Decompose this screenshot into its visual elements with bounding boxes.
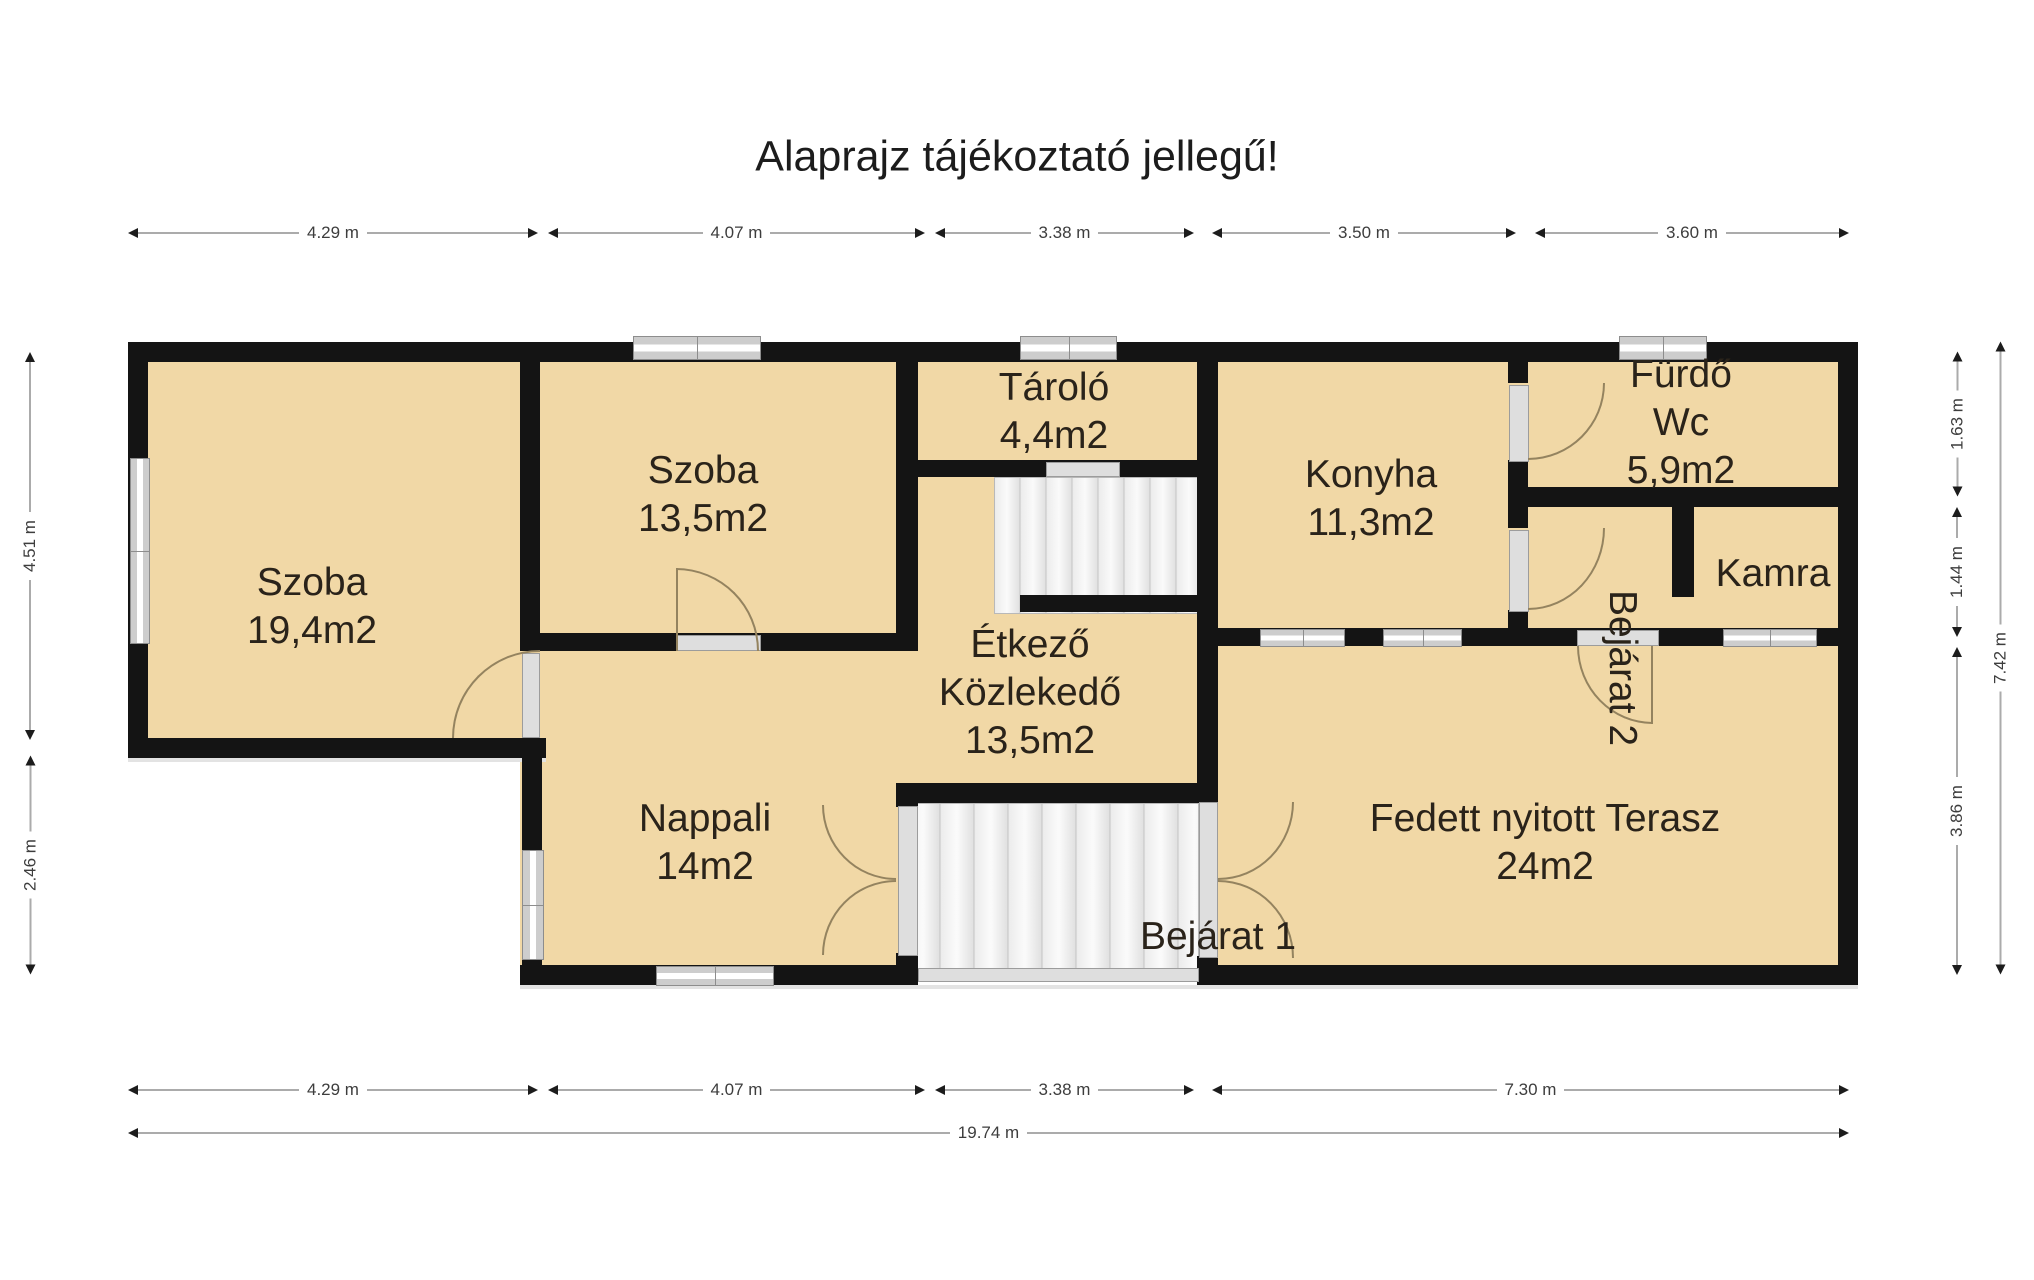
dimension-right-3: 3.86 m xyxy=(1949,647,1965,975)
floor-plan: Alaprajz tájékoztató jellegű! xyxy=(0,0,2034,1280)
doorway-furdo xyxy=(1509,385,1529,462)
dimension-left-2: 2.46 m xyxy=(23,756,39,975)
dimension-bottom-1: 4.29 m xyxy=(128,1082,538,1098)
window-hall xyxy=(1723,629,1817,647)
dimension-right-total: 7.42 m xyxy=(1993,342,2009,975)
dimension-top-3: 3.38 m xyxy=(935,225,1194,241)
room-label-szoba-13: Szoba 13,5m2 xyxy=(638,447,768,543)
doorway-hall xyxy=(1509,530,1529,612)
dimension-top-4: 3.50 m xyxy=(1212,225,1516,241)
wall-terasz-bottom xyxy=(1197,965,1858,985)
dimension-right-1: 1.63 m xyxy=(1950,352,1966,497)
wall-furdo-left xyxy=(1508,342,1528,383)
window-nappali-left xyxy=(522,850,544,960)
dimension-right-2: 1.44 m xyxy=(1949,507,1965,637)
outside-area-mask xyxy=(66,758,520,1070)
room-label-terasz: Fedett nyitott Terasz 24m2 xyxy=(1370,795,1720,891)
window-szoba19-left xyxy=(130,458,150,644)
dimension-bottom-4: 7.30 m xyxy=(1212,1082,1849,1098)
wall-tarolo-left xyxy=(896,342,918,651)
label-bejarat-2: Bejárat 2 xyxy=(1598,590,1646,746)
label-bejarat-1: Bejárat 1 xyxy=(1140,913,1296,961)
room-label-furdo: Fürdő Wc 5,9m2 xyxy=(1627,351,1735,495)
window-nappali-bottom xyxy=(656,966,774,986)
doorway-nappali-double xyxy=(898,806,918,956)
room-label-etkezo: Étkező Közlekedő 13,5m2 xyxy=(939,621,1121,765)
dimension-bottom-3: 3.38 m xyxy=(935,1082,1194,1098)
dimension-left-1: 4.51 m xyxy=(22,352,38,740)
dimension-bottom-2: 4.07 m xyxy=(548,1082,925,1098)
room-label-kamra: Kamra xyxy=(1716,550,1831,598)
dimension-top-1: 4.29 m xyxy=(128,225,538,241)
plan-title: Alaprajz tájékoztató jellegű! xyxy=(755,133,1278,182)
wall-top xyxy=(128,342,1858,362)
wall-szoba-divider xyxy=(520,342,540,651)
wall-right xyxy=(1838,342,1858,985)
dimension-top-5: 3.60 m xyxy=(1535,225,1849,241)
window-konyha-2 xyxy=(1383,629,1462,647)
window-konyha-1 xyxy=(1260,629,1345,647)
room-label-nappali: Nappali 14m2 xyxy=(639,795,771,891)
room-label-tarolo: Tároló 4,4m2 xyxy=(999,364,1110,460)
room-label-szoba-19: Szoba 19,4m2 xyxy=(247,559,377,655)
window-szoba13-top xyxy=(633,336,761,360)
dimension-bottom-total: 19.74 m xyxy=(128,1125,1849,1141)
dimension-top-2: 4.07 m xyxy=(548,225,925,241)
wall-shadow xyxy=(128,758,546,762)
staircase-upper xyxy=(994,477,1199,614)
wall-szoba19-bottom xyxy=(128,738,546,758)
room-label-konyha: Konyha 11,3m2 xyxy=(1305,451,1437,547)
doorway-tarolo xyxy=(1046,462,1120,477)
wall-konyha-left xyxy=(1197,342,1218,800)
threshold-entrance-stairs xyxy=(918,968,1199,982)
wall-upper-stairs-bottom xyxy=(1020,595,1218,612)
wall-entrance-stairs-top xyxy=(896,783,1218,803)
wall-kamra-stub xyxy=(1672,497,1694,597)
window-tarolo-top xyxy=(1020,336,1117,360)
wall-nappali-left xyxy=(522,758,542,852)
